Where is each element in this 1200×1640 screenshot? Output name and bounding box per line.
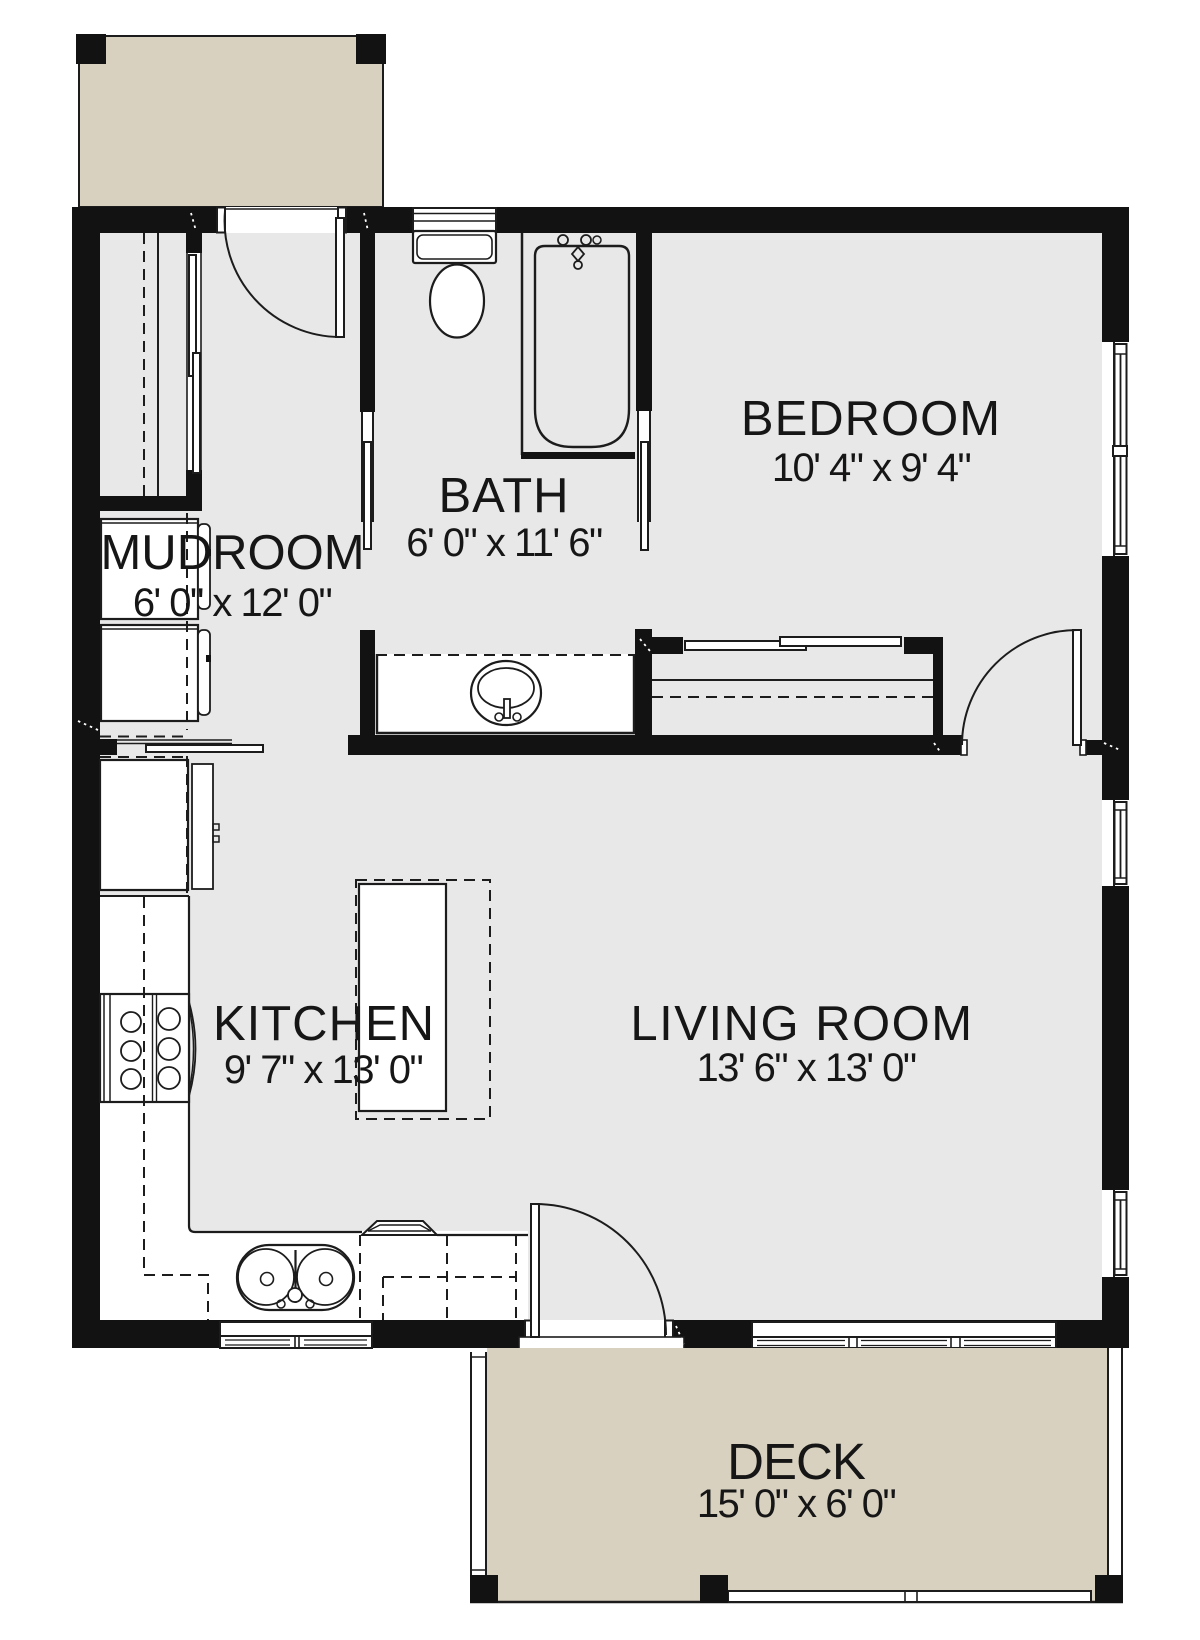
svg-text:13' 6" x 13' 0": 13' 6" x 13' 0" [696,1046,915,1090]
svg-text:KITCHEN: KITCHEN [213,997,435,1051]
svg-text:6' 0" x 11' 6": 6' 0" x 11' 6" [406,521,602,565]
svg-text:BATH: BATH [438,469,569,523]
svg-text:9' 7" x 13' 0": 9' 7" x 13' 0" [224,1048,423,1092]
svg-text:6' 0" x 12' 0": 6' 0" x 12' 0" [133,581,332,625]
svg-text:MUDROOM: MUDROOM [100,526,364,580]
svg-text:10' 4" x 9' 4": 10' 4" x 9' 4" [772,446,971,490]
svg-text:15' 0" x 6' 0": 15' 0" x 6' 0" [697,1482,896,1526]
svg-text:BEDROOM: BEDROOM [741,392,1001,446]
svg-text:LIVING ROOM: LIVING ROOM [630,997,973,1051]
